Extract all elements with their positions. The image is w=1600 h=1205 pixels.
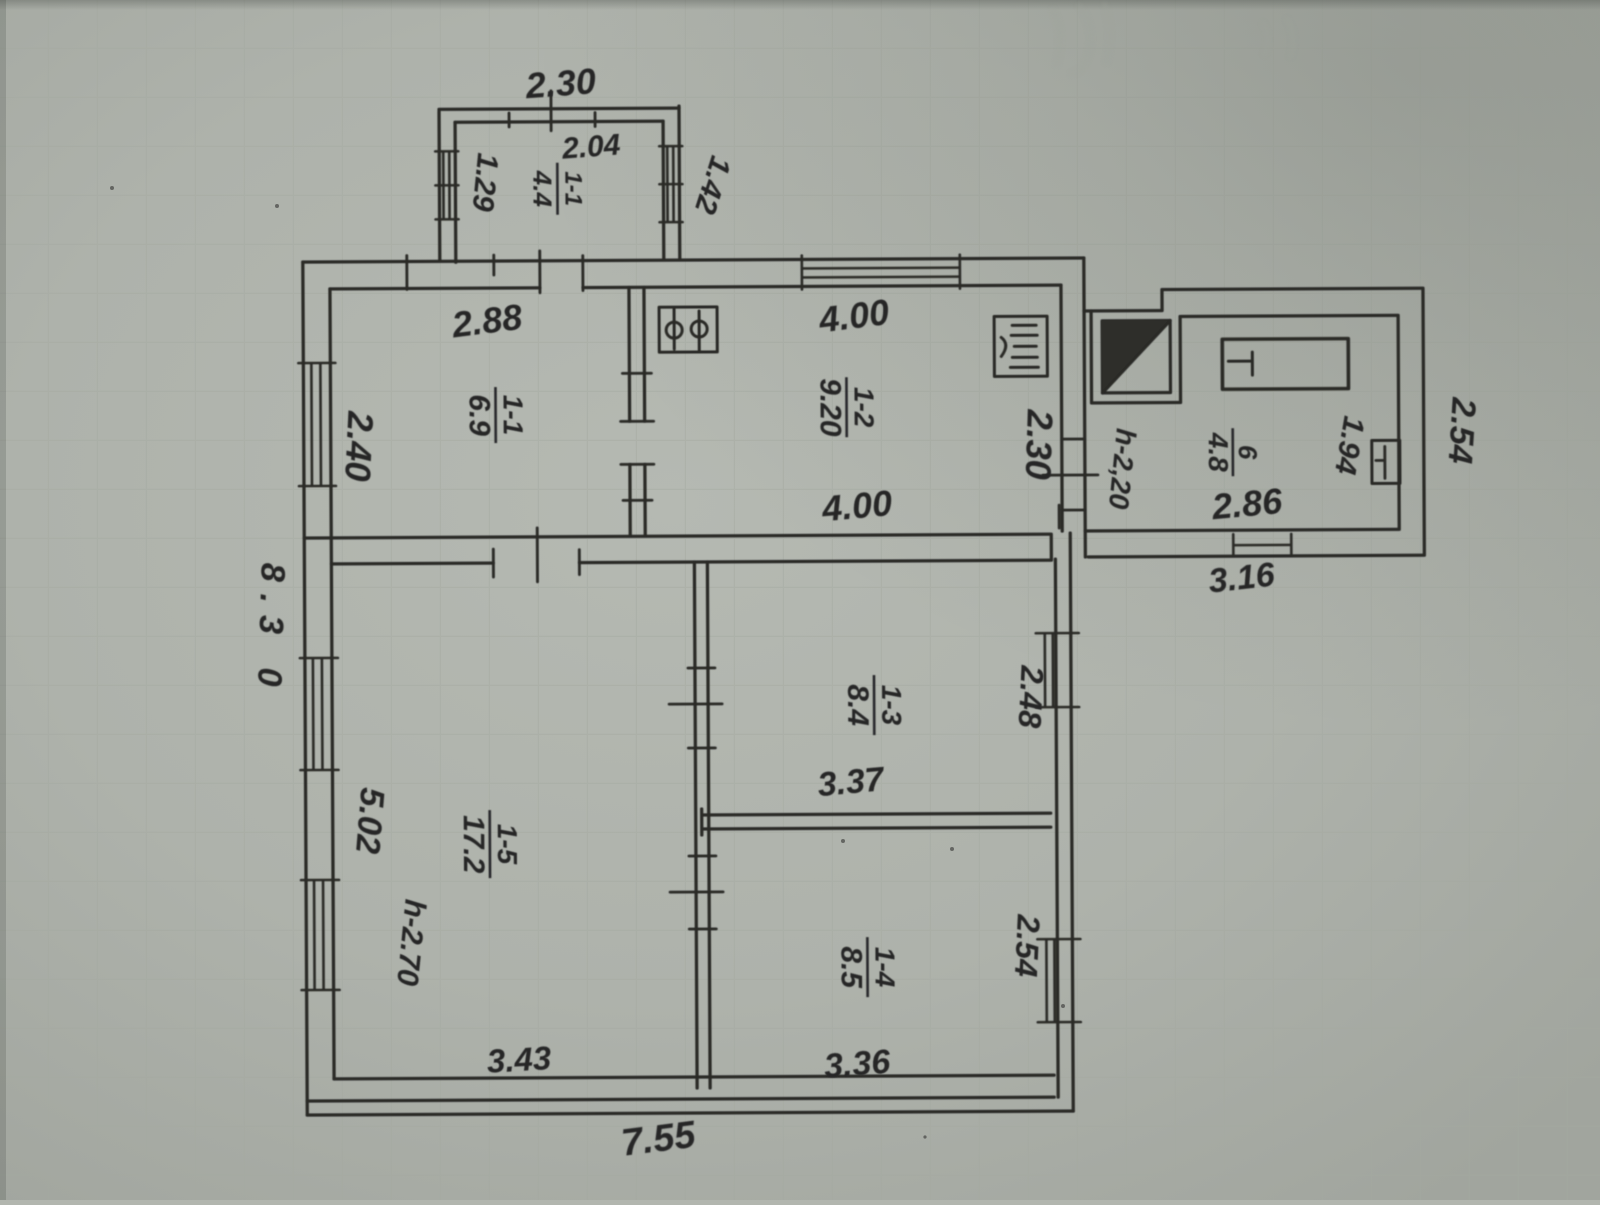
svg-text:2.04: 2.04 bbox=[560, 128, 622, 165]
svg-text:1-1: 1-1 bbox=[559, 171, 586, 206]
svg-text:8.4: 8.4 bbox=[841, 684, 874, 726]
svg-text:1-2: 1-2 bbox=[848, 387, 879, 428]
svg-text:3.37: 3.37 bbox=[816, 760, 887, 804]
svg-text:2.86: 2.86 bbox=[1209, 480, 1285, 527]
svg-text:3.43: 3.43 bbox=[486, 1039, 552, 1080]
svg-text:8.5: 8.5 bbox=[834, 946, 867, 989]
svg-text:2.30: 2.30 bbox=[1018, 408, 1061, 480]
svg-text:2.54: 2.54 bbox=[1441, 396, 1483, 466]
svg-text:3.16: 3.16 bbox=[1207, 556, 1278, 601]
svg-text:2.48: 2.48 bbox=[1012, 664, 1051, 729]
svg-text:6: 6 bbox=[1233, 445, 1263, 460]
svg-text:4.4: 4.4 bbox=[527, 170, 557, 208]
svg-text:4.8: 4.8 bbox=[1203, 432, 1234, 473]
svg-text:4.00: 4.00 bbox=[819, 482, 894, 529]
svg-text:1-4: 1-4 bbox=[869, 947, 900, 988]
svg-text:2.54: 2.54 bbox=[1008, 913, 1047, 978]
svg-text:1.29: 1.29 bbox=[465, 151, 504, 213]
svg-text:17.2: 17.2 bbox=[457, 815, 490, 874]
svg-text:6.9: 6.9 bbox=[463, 394, 496, 436]
svg-text:3.36: 3.36 bbox=[823, 1043, 893, 1086]
svg-text:9.20: 9.20 bbox=[813, 378, 846, 437]
svg-text:1-1: 1-1 bbox=[498, 395, 529, 436]
svg-text:2.40: 2.40 bbox=[337, 409, 381, 482]
svg-text:5.02: 5.02 bbox=[348, 786, 391, 855]
svg-text:2.30: 2.30 bbox=[523, 60, 597, 106]
svg-text:8.3 0: 8.3 0 bbox=[250, 562, 292, 699]
svg-text:1-3: 1-3 bbox=[876, 685, 907, 726]
svg-text:1-5: 1-5 bbox=[492, 824, 523, 865]
